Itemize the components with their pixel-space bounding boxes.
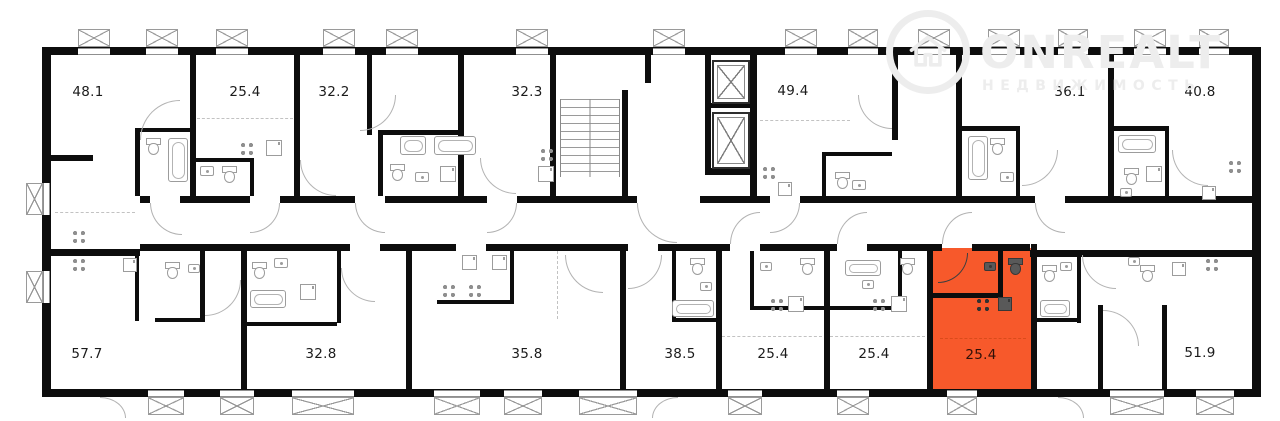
balcony-icon [918,29,950,47]
wall [337,251,341,323]
balcony-icon [26,271,43,303]
door-arc-icon [140,100,180,140]
bathtub-icon [1118,135,1156,153]
balcony-icon [1199,29,1229,47]
stove-icon [768,296,786,314]
wall [155,318,205,322]
balcony-icon [1196,397,1234,415]
window-icon [216,48,248,55]
door-arc-icon [730,212,760,244]
appliance-icon [300,284,316,300]
door-arc-icon [1082,255,1116,289]
room-area-label: 35.8 [511,346,542,362]
watermark: ONREALT НЕДВИЖИМОСТЬ [878,0,1218,110]
room-area-label: 57.7 [71,346,102,362]
toilet-icon [835,172,848,189]
wall [998,251,1003,298]
wall [510,251,514,303]
room-area-label: 25.4 [229,84,260,100]
wall [180,196,250,203]
stove-icon [440,282,458,300]
door-arc-icon [565,255,603,293]
wall [658,244,730,251]
room-area-label: 32.3 [511,84,542,100]
balcony-icon [728,397,762,415]
appliance-icon [1172,262,1186,276]
wall [750,306,824,310]
window-icon [292,390,354,397]
balcony-icon [1110,397,1164,415]
wall [406,251,412,389]
balcony-icon [988,29,1020,47]
wall [705,168,757,175]
bathtub-icon [845,260,881,276]
door-arc-icon [1172,150,1208,186]
window-icon [516,48,548,55]
sink-icon [760,262,772,271]
window-icon [434,390,480,397]
door-arc-icon [858,95,892,129]
wall [437,300,514,304]
balcony-icon [292,397,354,415]
wall [1031,244,1037,389]
window-icon [1134,48,1166,55]
door-arc-icon [1058,397,1084,418]
wall [1037,318,1081,322]
wall [1016,126,1020,196]
wall [246,244,350,251]
wall [140,196,150,203]
balcony-icon [1134,29,1166,47]
window-icon [43,183,50,215]
wall [378,130,383,196]
balcony-icon [579,397,637,415]
door-arc-icon [652,397,678,418]
balcony-icon [848,29,878,47]
wall [822,152,826,196]
window-icon [1199,48,1229,55]
zone-divider [197,118,293,119]
balcony-icon [516,29,548,47]
zone-divider [940,338,1026,339]
appliance-icon [266,140,282,156]
toilet-icon [222,166,235,183]
balcony-icon [947,397,977,415]
toilet-icon [1008,258,1021,275]
floor-plan: 48.1 25.4 32.2 32.3 49.4 36.1 40.8 57.7 … [0,0,1280,421]
stove-icon [1203,256,1221,274]
sink-icon [415,172,429,182]
wall [800,196,1035,203]
wall [1077,251,1081,323]
window-icon [785,48,817,55]
appliance-icon [778,182,792,196]
sink-icon [700,282,712,291]
balcony-icon [146,29,178,47]
appliance-icon [440,166,456,182]
balcony-icon [26,183,43,215]
room-area-label: 48.1 [72,84,103,100]
balcony-icon [323,29,355,47]
balcony-icon [785,29,817,47]
window-icon [146,48,178,55]
wall [622,90,628,196]
wall [705,55,711,170]
window-icon [848,48,878,55]
wall [196,158,254,162]
highlighted-room-area-label: 25.4 [965,347,996,363]
wall [760,244,837,251]
door-arc-icon [150,203,182,235]
wall [750,251,754,306]
wall [927,244,933,389]
stairs-icon [560,99,620,177]
window-icon [43,271,50,303]
balcony-icon [653,29,685,47]
appliance-icon [538,166,554,182]
balcony-icon [216,29,248,47]
bathtub-icon [250,290,286,308]
appliance-icon [1146,166,1162,182]
wall [458,55,464,196]
bathtub-icon [672,300,714,317]
window-icon [386,48,418,55]
wall [1065,196,1254,203]
balcony-icon [148,397,184,415]
wall [962,126,1020,131]
wall [378,130,458,135]
sink-icon [274,258,288,268]
sink-icon [1060,262,1072,271]
sink-icon [852,180,866,190]
stove-icon [466,282,484,300]
door-arc-icon [1022,150,1058,186]
room-area-label: 51.9 [1184,345,1215,361]
wall [280,196,355,203]
window-icon [947,390,977,397]
wall [42,47,51,397]
stove-icon [70,228,88,246]
wall [380,244,456,251]
room-area-label: 49.4 [777,83,808,99]
stove-icon [70,256,88,274]
door-arc-icon [487,203,517,233]
room-area-label: 25.4 [858,346,889,362]
zone-divider [557,251,558,319]
elevator-icon [712,60,750,104]
door-arc-icon [770,203,800,233]
door-arc-icon [837,212,867,244]
window-icon [653,48,685,55]
wall [48,155,93,161]
wall [241,251,247,389]
zone-divider [760,120,850,121]
wall [294,55,300,196]
appliance-icon [123,258,137,272]
appliance-icon [788,296,804,312]
window-icon [1196,390,1234,397]
toilet-icon [800,258,813,275]
bathtub-icon [168,138,188,182]
sink-icon [188,264,200,273]
window-icon [728,390,762,397]
door-arc-icon [1035,203,1065,233]
watermark-subtitle: НЕДВИЖИМОСТЬ [982,78,1201,94]
stove-icon [238,140,256,158]
room-area-label: 38.5 [664,346,695,362]
window-icon [837,390,869,397]
wall [48,249,140,256]
room-area-label: 40.8 [1184,84,1215,100]
toilet-icon [1042,265,1055,282]
balcony-icon [1058,29,1088,47]
balcony-icon [504,397,542,415]
window-icon [1110,390,1164,397]
zone-divider [722,336,822,337]
wall [824,251,830,389]
wall [250,158,254,196]
window-icon [918,48,950,55]
door-arc-icon [250,203,280,233]
door-arc-icon [480,158,516,194]
balcony-icon [386,29,418,47]
toilet-icon [990,138,1003,155]
bathtub-icon [400,136,426,155]
door-arc-icon [360,95,396,131]
bathtub-icon [1040,300,1070,317]
window-icon [579,390,637,397]
door-arc-icon [100,397,126,418]
zone-divider [55,212,135,213]
wall [1165,126,1169,196]
stove-icon [870,296,888,314]
wall [645,55,651,83]
wall [190,55,196,196]
window-icon [220,390,254,397]
wall [1252,47,1261,397]
wall [672,318,718,322]
balcony-icon [434,397,480,415]
door-arc-icon [355,203,385,233]
toilet-icon [165,262,178,279]
window-icon [1058,48,1088,55]
sink-icon [1000,172,1014,182]
room-area-label: 36.1 [1054,84,1085,100]
wall [892,55,898,140]
sink-icon [1128,257,1140,266]
wall [1114,126,1169,131]
door-arc-icon [1103,310,1139,346]
wall [517,196,556,203]
appliance-icon [462,255,477,270]
wall [700,196,770,203]
toilet-icon [1124,168,1137,185]
stove-icon [760,164,778,182]
balcony-icon [220,397,254,415]
toilet-icon [1140,265,1153,282]
bathtub-icon [434,136,476,155]
zone-divider [830,336,925,337]
wall [247,322,337,326]
door-arc-icon [341,268,375,302]
door-arc-icon [637,203,677,243]
door-arc-icon [205,280,241,316]
door-arc-icon [942,212,972,244]
stove-icon [974,296,992,314]
room-area-label: 32.2 [318,84,349,100]
wall [553,196,637,203]
window-icon [988,48,1020,55]
toilet-icon [900,258,913,275]
window-icon [323,48,355,55]
wall [486,244,628,251]
appliance-icon [1202,186,1216,200]
toilet-icon [252,262,265,279]
sink-icon [200,166,214,176]
wall [1162,305,1167,389]
door-arc-icon [628,255,662,289]
toilet-icon [146,138,159,155]
window-icon [78,48,110,55]
sink-icon [862,280,874,289]
balcony-icon [837,397,869,415]
appliance-icon [891,296,907,312]
sink-icon [984,262,996,271]
wall [620,251,626,389]
wall [385,196,487,203]
toilet-icon [690,258,703,275]
room-area-label: 32.8 [305,346,336,362]
wall [933,293,1003,298]
stove-icon [538,146,556,164]
window-icon [148,390,184,397]
stove-icon [1226,158,1244,176]
sink-icon [1120,188,1132,197]
appliance-icon [492,255,507,270]
elevator-icon [712,112,750,169]
appliance-icon [998,297,1012,311]
bathtub-icon [968,136,988,180]
window-icon [504,390,542,397]
wall [140,244,246,251]
room-area-label: 25.4 [757,346,788,362]
toilet-icon [390,164,403,181]
balcony-icon [78,29,110,47]
door-arc-icon [300,160,336,196]
wall [972,244,1030,251]
wall [822,152,892,156]
